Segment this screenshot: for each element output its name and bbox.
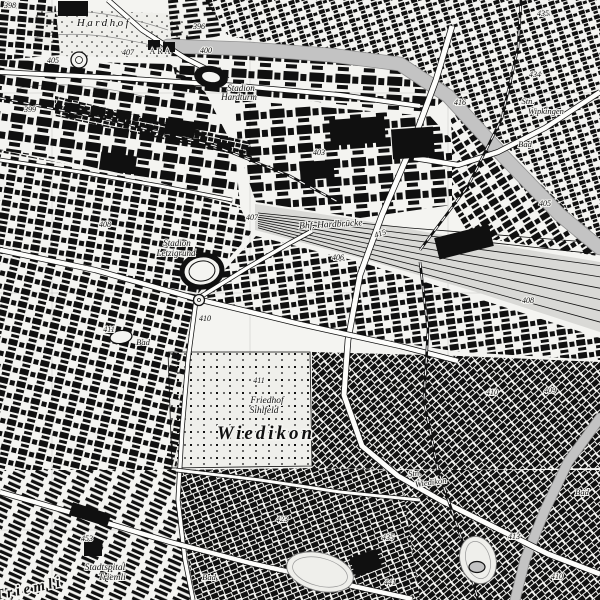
large-building bbox=[329, 116, 386, 146]
map-label: 408 bbox=[99, 220, 111, 229]
large-building bbox=[299, 160, 334, 180]
map-canvas[interactable]: 398Hardhof405407ARA396400399435434416Stn… bbox=[0, 0, 600, 600]
map-label: Letzigrund bbox=[155, 248, 196, 258]
map-label: Stn. bbox=[522, 96, 535, 106]
map-viewport[interactable]: 398Hardhof405407ARA396400399435434416Stn… bbox=[0, 0, 600, 600]
map-label: 441 bbox=[384, 578, 396, 587]
map-label: 416 bbox=[454, 98, 466, 107]
large-building bbox=[58, 1, 88, 16]
map-label: Bad bbox=[136, 337, 150, 347]
map-label: 396 bbox=[192, 22, 205, 31]
map-label: 409 bbox=[544, 386, 556, 395]
map-label: 399 bbox=[23, 105, 36, 114]
district-sihlfeld-east bbox=[312, 352, 600, 470]
map-label: 435 bbox=[382, 533, 394, 542]
map-label: 410 bbox=[486, 388, 498, 397]
map-label: Stadtspital bbox=[85, 563, 126, 573]
tank bbox=[71, 52, 87, 68]
map-label: 413 bbox=[508, 532, 520, 541]
map-label: 406 bbox=[332, 253, 344, 262]
map-label: 405 bbox=[539, 199, 551, 208]
map-label: Stn. bbox=[407, 467, 421, 479]
large-building bbox=[391, 127, 435, 160]
district-kreis3-sued-ost bbox=[400, 470, 600, 600]
map-label: 410 bbox=[199, 314, 211, 323]
map-label: 408 bbox=[522, 296, 534, 305]
map-label: 411 bbox=[103, 325, 114, 334]
pond bbox=[469, 562, 485, 573]
map-label: ARA bbox=[150, 47, 173, 56]
map-label: 423 bbox=[276, 515, 288, 524]
map-label: 435 bbox=[537, 9, 549, 18]
map-label: Sihlfeld bbox=[249, 405, 278, 416]
map-label: Hardturm bbox=[220, 92, 257, 102]
map-label: 434 bbox=[529, 70, 541, 79]
map-label: 400 bbox=[200, 46, 212, 55]
map-label: 410 bbox=[551, 572, 563, 581]
map-label: Friedhof bbox=[249, 395, 285, 406]
map-label: 411 bbox=[253, 376, 264, 385]
map-label: 403 bbox=[313, 148, 325, 157]
map-label: Stadion bbox=[163, 238, 191, 248]
map-label: Wipkingen bbox=[528, 106, 564, 116]
map-label: Bad bbox=[518, 139, 532, 149]
map-label: 407 bbox=[122, 48, 135, 57]
map-label: 407 bbox=[246, 213, 259, 222]
map-label: 405 bbox=[47, 56, 59, 65]
map-label: Wiedikon bbox=[217, 423, 315, 444]
map-label: Triemli bbox=[98, 573, 126, 583]
map-label: Bad bbox=[575, 487, 589, 497]
roundabout bbox=[194, 295, 205, 306]
map-label: 398 bbox=[3, 1, 16, 10]
map-label: Hardhof bbox=[76, 17, 131, 29]
map-label: Bad bbox=[202, 572, 216, 582]
map-label: 453 bbox=[81, 534, 93, 543]
